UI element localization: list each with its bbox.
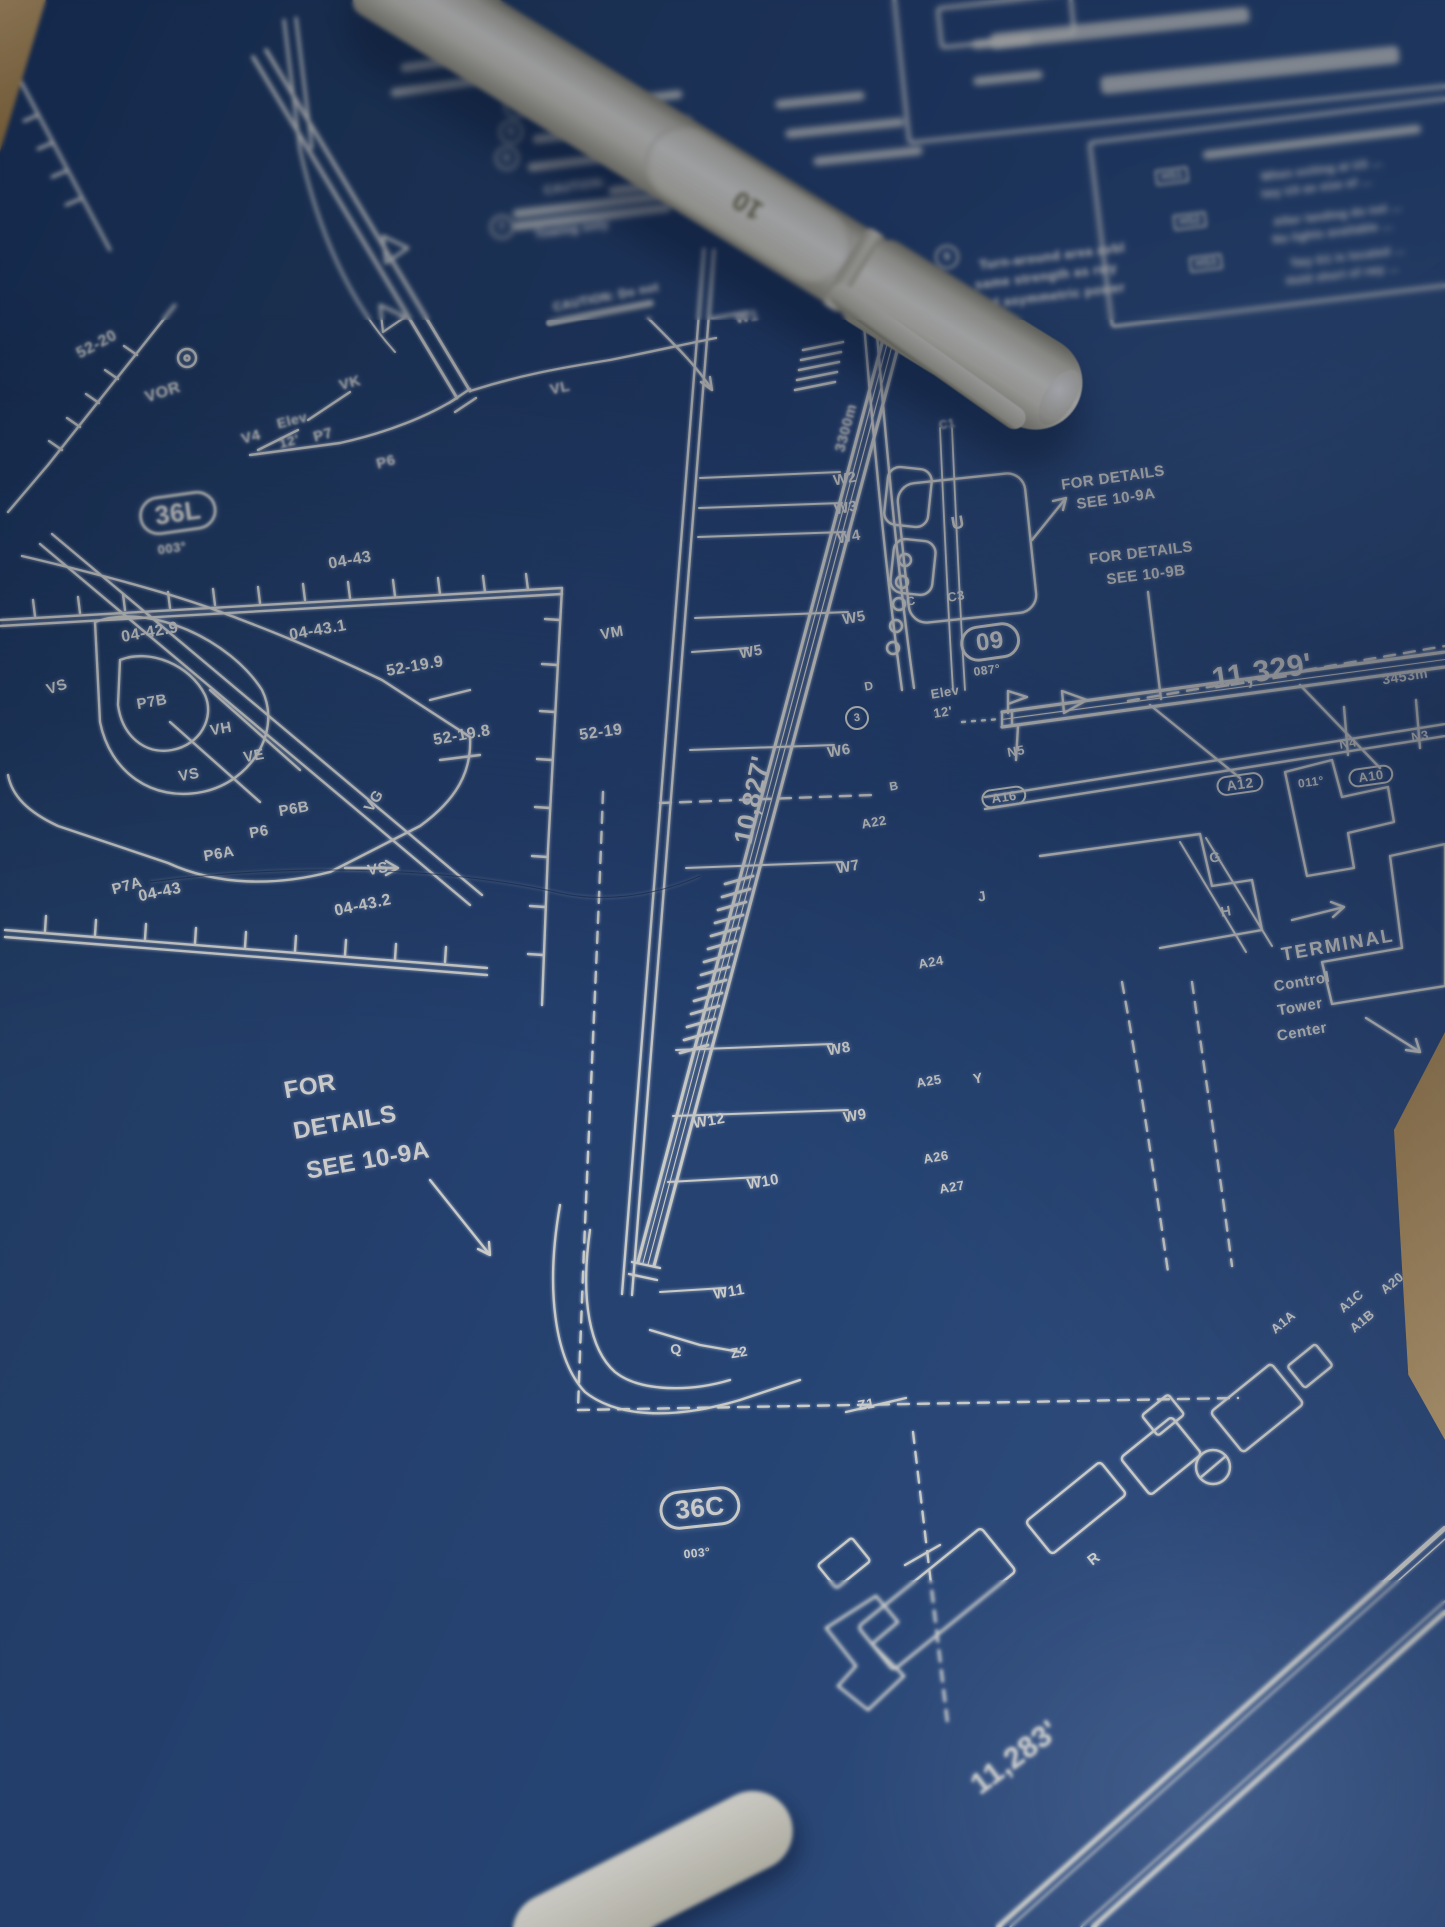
taxiway-label: N5 <box>1006 742 1026 760</box>
leader-arrows <box>430 318 712 1255</box>
photo-of-airport-blueprint: 4 5 6 CAUTION: 7 Towing only HS1 When ex… <box>0 0 1445 1927</box>
terminal-buildings <box>1040 760 1445 1052</box>
taxiway-label: VS <box>177 765 201 785</box>
taxiway-label: N3 <box>1410 727 1430 745</box>
taxiway-label: VE <box>242 746 266 766</box>
southeast-runway-and-cargo <box>817 1344 1445 1927</box>
taxiway-label: N4 <box>1338 734 1358 752</box>
taxiway-label: C3 <box>946 587 966 605</box>
taxiway-label: H <box>1219 902 1232 920</box>
taxiway-label: Z2 <box>729 1343 749 1362</box>
apron-label: U <box>950 511 967 534</box>
runway-heading: 003° <box>683 1545 711 1562</box>
taxiway-label: P6 <box>248 822 270 842</box>
elevation-value: 12' <box>932 703 953 721</box>
grid-rulers <box>0 80 562 1005</box>
taxiway-label: VS <box>366 859 390 879</box>
pen-size-marking: 10 <box>727 183 769 225</box>
no-entry-symbol <box>1196 1450 1230 1484</box>
taxiway-label: Z1 <box>856 1395 876 1414</box>
hairline-fiber <box>150 870 700 897</box>
west-apron-complex <box>8 534 482 905</box>
